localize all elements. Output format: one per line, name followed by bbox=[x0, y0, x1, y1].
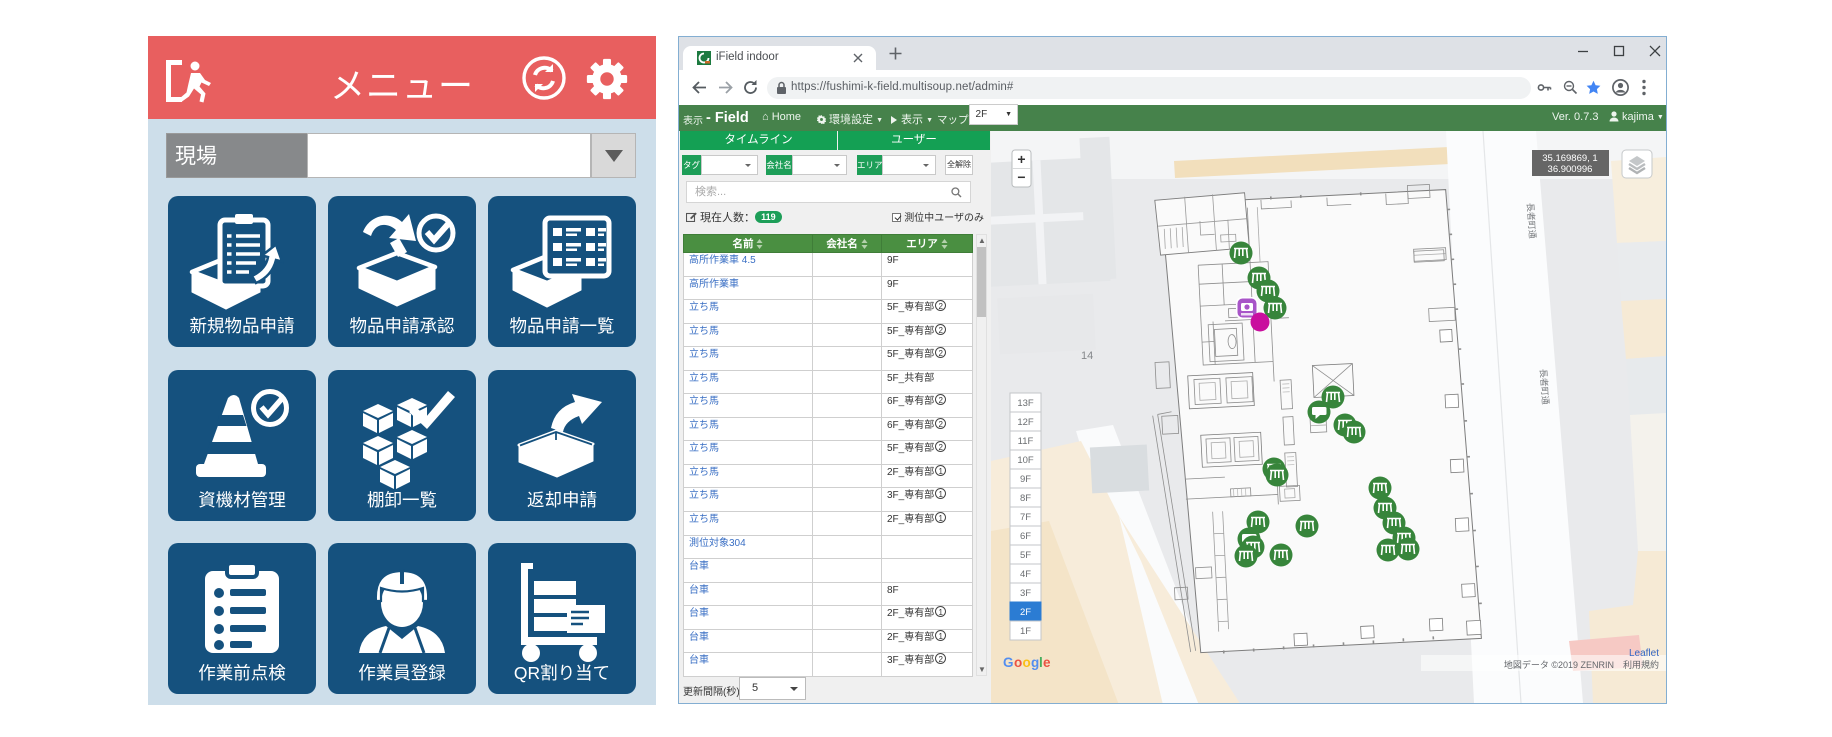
svg-text:Leaflet: Leaflet bbox=[1629, 648, 1659, 659]
svg-text:12F: 12F bbox=[1017, 417, 1034, 428]
svg-text:6F: 6F bbox=[1020, 531, 1031, 542]
svg-text:9F: 9F bbox=[1020, 474, 1031, 485]
svg-text:−: − bbox=[1017, 169, 1025, 185]
svg-text:11F: 11F bbox=[1018, 436, 1034, 447]
svg-text:G: G bbox=[1003, 655, 1014, 670]
svg-text:35.169869, 1: 35.169869, 1 bbox=[1542, 153, 1597, 164]
svg-text:2F: 2F bbox=[1020, 607, 1031, 618]
svg-text:e: e bbox=[1043, 655, 1051, 670]
svg-text:+: + bbox=[1017, 151, 1025, 167]
svg-text:8F: 8F bbox=[1020, 493, 1031, 504]
svg-text:4F: 4F bbox=[1020, 569, 1031, 580]
svg-text:1F: 1F bbox=[1020, 626, 1031, 637]
svg-text:36.900996: 36.900996 bbox=[1548, 164, 1593, 175]
svg-text:10F: 10F bbox=[1017, 455, 1034, 466]
svg-text:13F: 13F bbox=[1017, 398, 1034, 409]
svg-text:7F: 7F bbox=[1020, 512, 1031, 523]
svg-text:o: o bbox=[1023, 655, 1031, 670]
svg-text:g: g bbox=[1031, 655, 1039, 670]
svg-text:o: o bbox=[1014, 655, 1022, 670]
svg-text:3F: 3F bbox=[1020, 588, 1031, 599]
svg-text:5F: 5F bbox=[1020, 550, 1031, 561]
svg-text:14: 14 bbox=[1081, 350, 1093, 362]
svg-text:地図データ ©2019 ZENRIN 利用規約: 地図データ ©2019 ZENRIN 利用規約 bbox=[1504, 659, 1659, 670]
